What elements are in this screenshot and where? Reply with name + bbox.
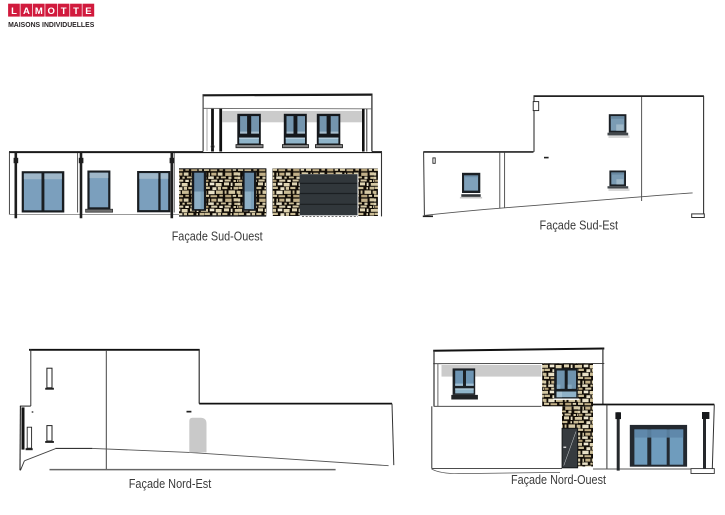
svg-text:T: T	[61, 6, 67, 17]
svg-text:L: L	[11, 6, 17, 17]
svg-text:O: O	[48, 6, 55, 17]
svg-text:MAISONS INDIVIDUELLES: MAISONS INDIVIDUELLES	[8, 20, 94, 29]
svg-text:E: E	[85, 6, 91, 17]
svg-text:M: M	[35, 6, 43, 17]
svg-text:Façade Nord-Ouest: Façade Nord-Ouest	[511, 473, 606, 487]
svg-text:Façade Sud-Ouest: Façade Sud-Ouest	[172, 229, 263, 243]
svg-text:T: T	[73, 6, 79, 17]
svg-text:A: A	[23, 6, 30, 17]
svg-text:Façade Nord-Est: Façade Nord-Est	[129, 477, 212, 491]
svg-text:Façade Sud-Est: Façade Sud-Est	[540, 219, 619, 233]
